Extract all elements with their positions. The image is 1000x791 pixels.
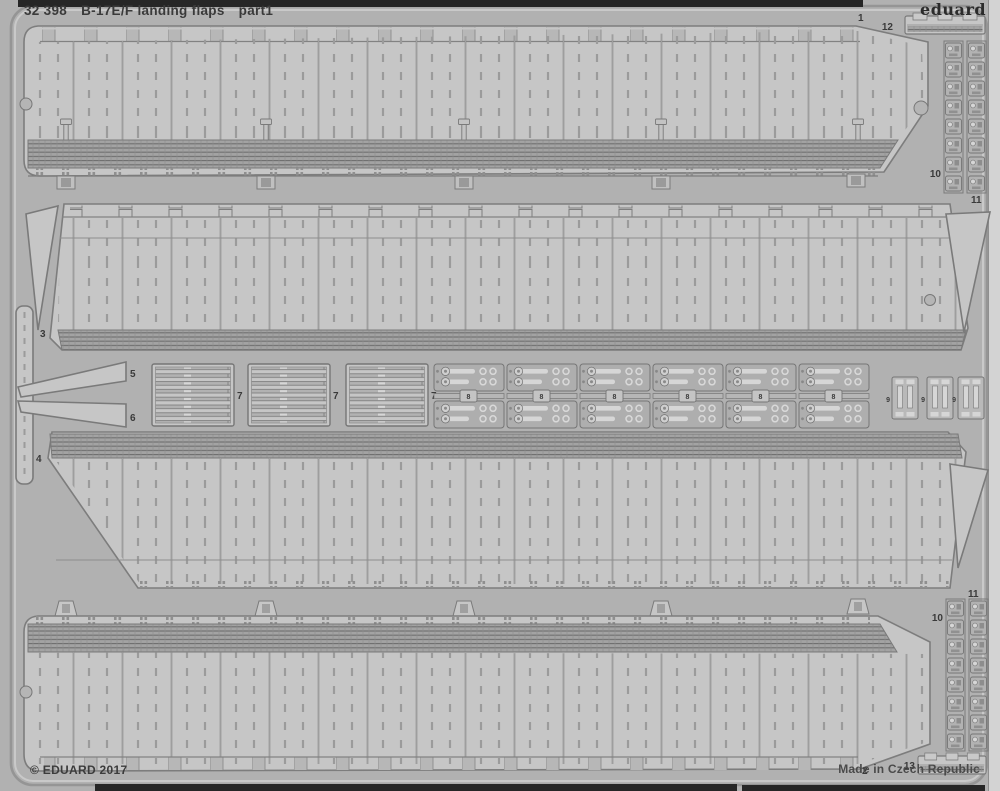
hinge-column-part-11-top xyxy=(967,41,986,193)
part9-number-c: 9 xyxy=(952,397,956,404)
flap-part-4: 4 xyxy=(36,432,966,588)
wedge-part-5 xyxy=(18,362,126,397)
part6-number: 6 xyxy=(130,413,136,424)
part11-number-top: 11 xyxy=(971,195,982,206)
part12-number: 12 xyxy=(882,22,894,33)
part3-hinge-knob xyxy=(925,295,936,306)
part4-bottom-rail xyxy=(138,581,950,588)
part8-number-e: 8 xyxy=(759,394,763,401)
photo-edge-bottom-left xyxy=(95,784,737,791)
sheet-title: B-17E/F landing flaps xyxy=(81,3,225,18)
eduard-logo: eduard xyxy=(920,0,986,19)
part3-rib-panel xyxy=(58,218,966,330)
part3-number: 3 xyxy=(40,329,46,340)
part9-number-b: 9 xyxy=(921,397,925,404)
hinge-column-part-10-top xyxy=(944,41,963,193)
part1-left-hinge-knob xyxy=(20,98,32,110)
part9-number-a: 9 xyxy=(886,397,890,404)
part4-corrugated-band xyxy=(50,434,962,458)
flap-part-2: 2 xyxy=(20,599,930,777)
ladder-part-7-b xyxy=(248,364,330,426)
part8-number-c: 8 xyxy=(613,394,617,401)
part2-top-rail xyxy=(30,616,870,624)
photo-edge-bottom-right xyxy=(742,785,985,791)
part4-number: 4 xyxy=(36,454,42,465)
plate-part-9-c xyxy=(958,377,984,419)
part1-rib-panel xyxy=(30,31,924,140)
photoetch-fret-photo: 1 12 10 11 3 5 6 xyxy=(0,0,1000,791)
part2-corrugated-band xyxy=(28,624,897,652)
plate-part-9-a xyxy=(892,377,918,419)
plate-part-9-b xyxy=(927,377,953,419)
part8-number-f: 8 xyxy=(832,394,836,401)
part10-number-bottom: 10 xyxy=(932,613,944,624)
part5-number: 5 xyxy=(130,369,136,380)
part2-hinge-tab-row xyxy=(44,757,856,770)
ladder-part-7-a xyxy=(152,364,234,426)
part2-rib-panel xyxy=(30,652,928,764)
part4-rib-panel xyxy=(54,458,960,584)
part3-tab-row xyxy=(70,206,942,217)
part1-bottom-rail xyxy=(28,168,878,176)
part7-number-b: 7 xyxy=(333,391,339,402)
part8-number-b: 8 xyxy=(540,394,544,401)
ladder-part-7-c xyxy=(346,364,428,426)
sheet-header: 32 398 B-17E/F landing flaps part1 xyxy=(24,3,273,18)
part11-number-bottom: 11 xyxy=(968,589,979,600)
part1-number: 1 xyxy=(858,13,864,24)
part1-right-hinge-knob xyxy=(914,101,928,115)
part3-corrugated-band xyxy=(58,330,966,350)
copyright-text: © EDUARD 2017 xyxy=(30,763,127,777)
hinge-column-part-11-bottom xyxy=(969,599,988,751)
part1-corrugated-band xyxy=(28,140,898,168)
part7-number-a: 7 xyxy=(237,391,243,402)
flap-part-3: 3 xyxy=(40,204,968,350)
part2-left-hinge-knob xyxy=(20,686,32,698)
part8-number-d: 8 xyxy=(686,394,690,401)
part8-number-a: 8 xyxy=(467,394,471,401)
flap-part-1: 1 xyxy=(20,13,928,189)
catalog-number: 32 398 xyxy=(24,3,67,18)
wedge-part-6 xyxy=(18,401,126,427)
part10-number-top: 10 xyxy=(930,169,942,180)
hinge-column-part-10-bottom xyxy=(946,599,965,751)
sheet-part-number: part1 xyxy=(239,3,274,18)
made-in-text: Made in Czech Republic xyxy=(838,762,980,776)
fret-sheet-drawing: 1 12 10 11 3 5 6 xyxy=(0,0,1000,791)
photo-edge-right xyxy=(989,0,1000,791)
